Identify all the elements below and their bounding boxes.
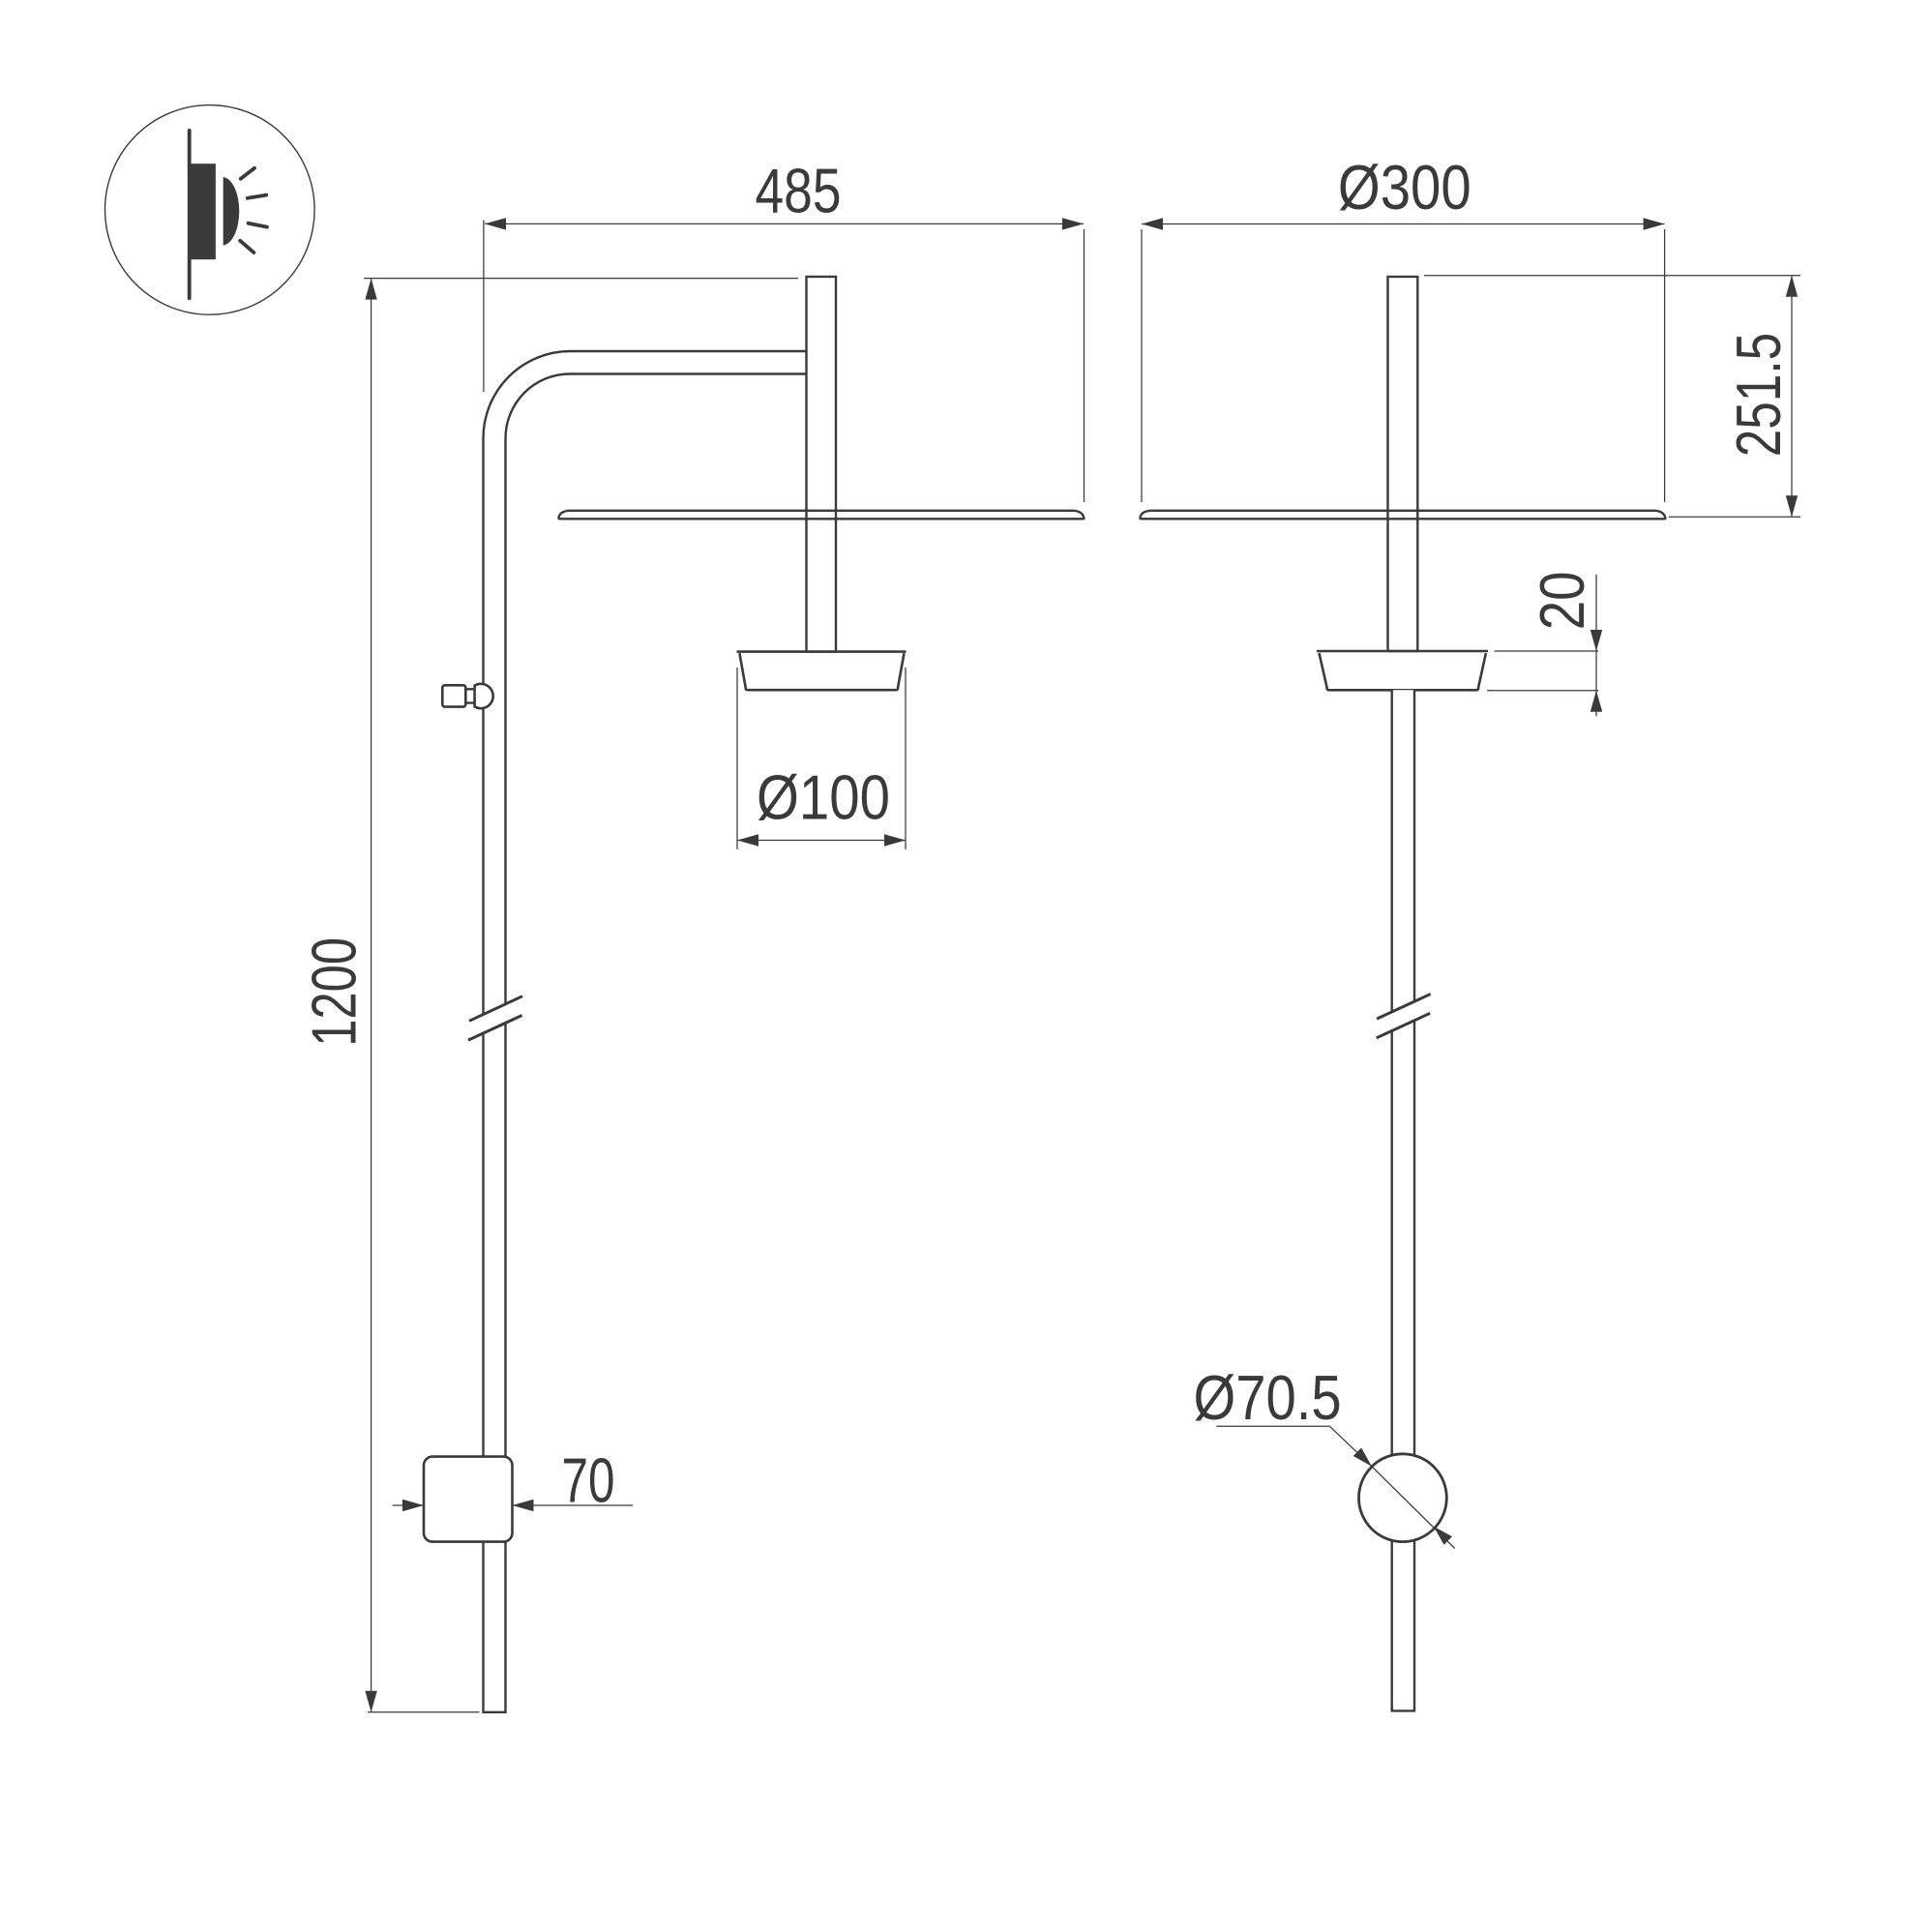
svg-text:485: 485 (756, 155, 842, 225)
svg-text:70: 70 (562, 1445, 615, 1516)
svg-text:251.5: 251.5 (1723, 333, 1794, 457)
svg-text:1200: 1200 (298, 937, 369, 1047)
svg-text:20: 20 (1527, 571, 1597, 630)
svg-text:Ø300: Ø300 (1338, 152, 1471, 223)
svg-text:Ø70.5: Ø70.5 (1194, 1362, 1342, 1433)
svg-text:Ø100: Ø100 (757, 762, 890, 833)
